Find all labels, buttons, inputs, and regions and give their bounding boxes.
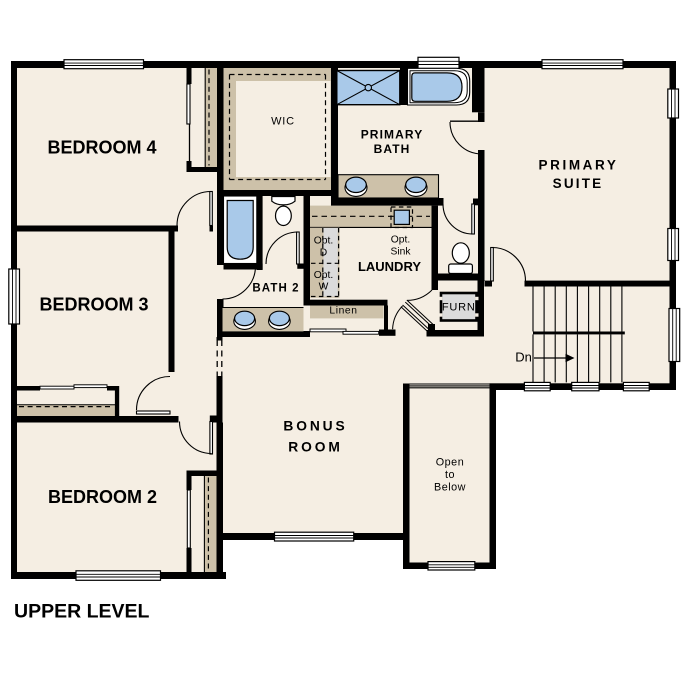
svg-text:FURN: FURN — [442, 302, 476, 314]
svg-text:D: D — [320, 247, 327, 258]
svg-text:PRIMARY: PRIMARY — [361, 127, 424, 141]
svg-text:Opt.: Opt. — [391, 235, 410, 246]
svg-text:Sink: Sink — [390, 247, 411, 258]
svg-text:LAUNDRY: LAUNDRY — [358, 259, 421, 274]
svg-text:BEDROOM 2: BEDROOM 2 — [48, 487, 157, 507]
svg-text:Open: Open — [436, 457, 464, 469]
svg-text:BATH 2: BATH 2 — [252, 282, 299, 294]
svg-text:BONUS: BONUS — [283, 419, 347, 434]
svg-text:WIC: WIC — [271, 116, 295, 128]
svg-text:Dn: Dn — [515, 350, 532, 365]
svg-text:Below: Below — [434, 482, 466, 494]
svg-text:W: W — [319, 282, 329, 293]
svg-text:to: to — [445, 469, 455, 481]
svg-text:UPPER LEVEL: UPPER LEVEL — [14, 601, 150, 623]
svg-text:BEDROOM 4: BEDROOM 4 — [47, 138, 156, 158]
svg-text:Linen: Linen — [329, 306, 357, 317]
svg-text:Opt.: Opt. — [314, 270, 333, 281]
svg-text:BATH: BATH — [374, 142, 411, 156]
svg-text:PRIMARY: PRIMARY — [539, 158, 619, 173]
svg-text:ROOM: ROOM — [288, 440, 343, 455]
svg-text:BEDROOM 3: BEDROOM 3 — [39, 295, 148, 315]
svg-text:Opt.: Opt. — [314, 236, 333, 247]
svg-text:SUITE: SUITE — [553, 176, 604, 191]
